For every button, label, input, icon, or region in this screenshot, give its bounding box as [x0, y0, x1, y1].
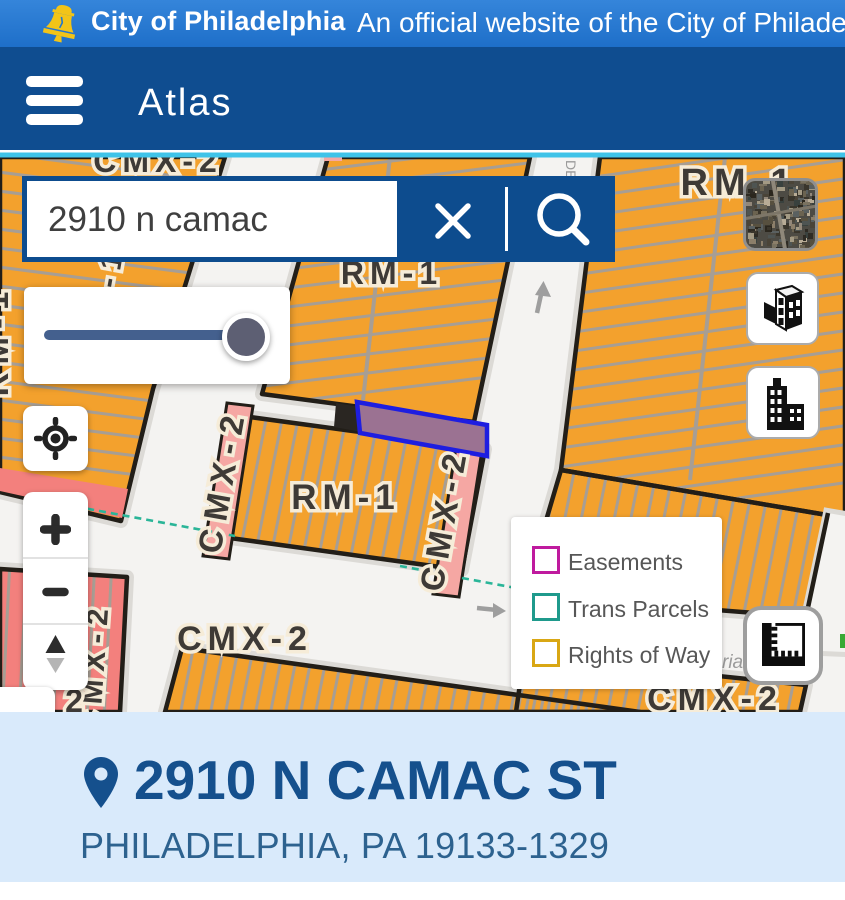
svg-text:ria: ria: [722, 652, 743, 673]
svg-text:CMX-2: CMX-2: [177, 620, 313, 658]
svg-text:RM-1: RM-1: [291, 478, 401, 517]
svg-text:RM-1: RM-1: [0, 284, 15, 397]
